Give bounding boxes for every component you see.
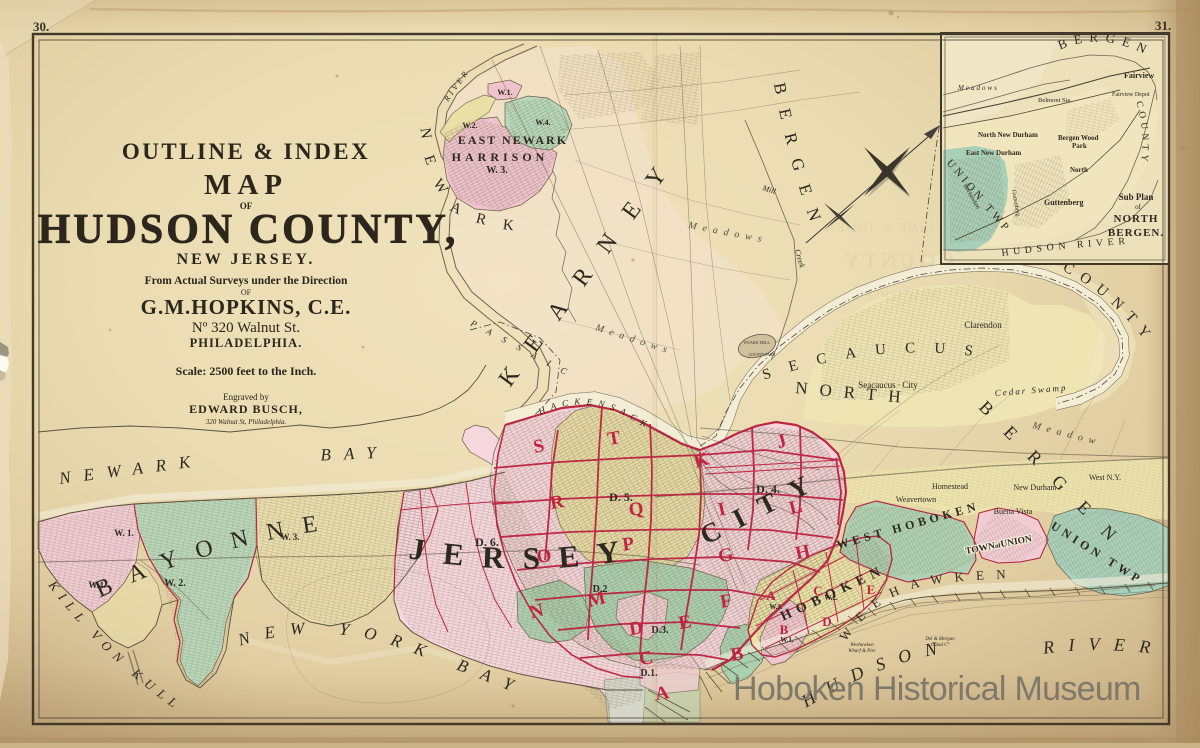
svg-text:W.2.: W.2. (462, 121, 477, 130)
svg-text:Clarendon: Clarendon (964, 320, 1002, 330)
svg-text:COUNTY: COUNTY (841, 248, 954, 273)
svg-text:W. 3.: W. 3. (281, 532, 300, 542)
svg-text:Weavertown: Weavertown (896, 495, 936, 504)
svg-text:W. 3.: W. 3. (486, 165, 508, 176)
svg-text:West N.Y.: West N.Y. (1089, 473, 1121, 482)
svg-text:Nº 320 Walnut St.: Nº 320 Walnut St. (192, 320, 300, 336)
svg-text:BERGEN.: BERGEN. (1108, 227, 1164, 239)
svg-text:BAY: BAY (320, 443, 389, 465)
svg-text:E: E (867, 582, 876, 597)
svg-text:Engraved by: Engraved by (223, 392, 269, 402)
svg-text:G.M.HOPKINS, C.E.: G.M.HOPKINS, C.E. (141, 295, 352, 319)
svg-text:Wharf & Pier: Wharf & Pier (848, 649, 876, 654)
svg-text:W.4.: W.4. (535, 118, 550, 127)
svg-text:North: North (1070, 166, 1088, 174)
svg-text:Fairview: Fairview (1124, 71, 1154, 80)
svg-text:From Actual Surveys under the: From Actual Surveys under the Direction (145, 275, 348, 287)
svg-text:Fairview Depot: Fairview Depot (1112, 92, 1150, 98)
svg-text:OUTLINE & INDEX: OUTLINE & INDEX (122, 139, 370, 164)
svg-text:Sub Plan: Sub Plan (1119, 192, 1154, 202)
svg-text:of: of (1135, 203, 1142, 211)
svg-text:B: B (780, 622, 789, 637)
svg-text:COUNTY FARM: COUNTY FARM (749, 352, 776, 357)
svg-text:30.: 30. (33, 19, 49, 34)
svg-text:W. 1.: W. 1. (114, 528, 133, 538)
svg-text:A: A (766, 588, 776, 603)
svg-text:Buena Vista: Buena Vista (994, 507, 1033, 516)
svg-text:320 Walnut St, Philadelphia.: 320 Walnut St, Philadelphia. (205, 418, 287, 426)
svg-text:C: C (813, 583, 822, 598)
svg-text:HUDSON COUNTY,: HUDSON COUNTY, (38, 207, 459, 253)
svg-text:31.: 31. (1155, 18, 1171, 33)
svg-text:W. 2.: W. 2. (164, 578, 186, 589)
svg-text:D: D (822, 614, 831, 629)
svg-text:Canal Cº: Canal Cº (931, 642, 950, 648)
svg-text:Bergen Wood: Bergen Wood (1058, 134, 1099, 142)
svg-text:East New Durham: East New Durham (966, 149, 1021, 157)
svg-text:New Durham: New Durham (1013, 483, 1057, 492)
svg-text:HARRISON: HARRISON (452, 150, 549, 164)
svg-text:Homestead: Homestead (932, 482, 968, 491)
svg-text:Guttenberg: Guttenberg (1044, 198, 1084, 207)
svg-text:Del & Morgan: Del & Morgan (924, 637, 955, 642)
svg-text:EDWARD BUSCH,: EDWARD BUSCH, (189, 402, 303, 416)
svg-text:PHILADELPHIA.: PHILADELPHIA. (190, 336, 303, 350)
svg-text:W.4.: W.4. (88, 580, 105, 590)
svg-text:Weehawken: Weehawken (850, 643, 874, 648)
svg-text:Belmont Sta.: Belmont Sta. (1038, 97, 1072, 104)
svg-text:North New Durham: North New Durham (978, 131, 1038, 139)
svg-text:Scale: 2500 feet to the Inch.: Scale: 2500 feet to the Inch. (176, 364, 317, 378)
svg-text:NEW JERSEY.: NEW JERSEY. (177, 251, 316, 268)
svg-text:W.1.: W.1. (780, 636, 794, 644)
svg-text:EAST NEWARK: EAST NEWARK (458, 133, 568, 147)
svg-text:Meadows: Meadows (957, 84, 999, 92)
svg-text:NORTH: NORTH (1114, 213, 1159, 225)
svg-text:Park: Park (1072, 142, 1087, 150)
svg-text:NEW JERSEY: NEW JERSEY (854, 289, 939, 304)
svg-text:D. 6.: D. 6. (475, 535, 499, 549)
svg-text:W.1.: W.1. (497, 88, 512, 97)
svg-text:D. 5.: D. 5. (609, 490, 633, 504)
svg-text:SNAKE HILL: SNAKE HILL (744, 340, 771, 345)
svg-text:D.2: D.2 (593, 584, 608, 595)
svg-text:W.2.: W.2. (824, 594, 838, 602)
svg-text:W.3.: W.3. (769, 603, 783, 611)
svg-text:D. 4.: D. 4. (756, 482, 780, 496)
svg-text:Hoboken Historical Museum: Hoboken Historical Museum (733, 670, 1141, 708)
svg-text:MAP: MAP (204, 169, 288, 201)
svg-text:Seacaucus · City: Seacaucus · City (858, 380, 918, 390)
